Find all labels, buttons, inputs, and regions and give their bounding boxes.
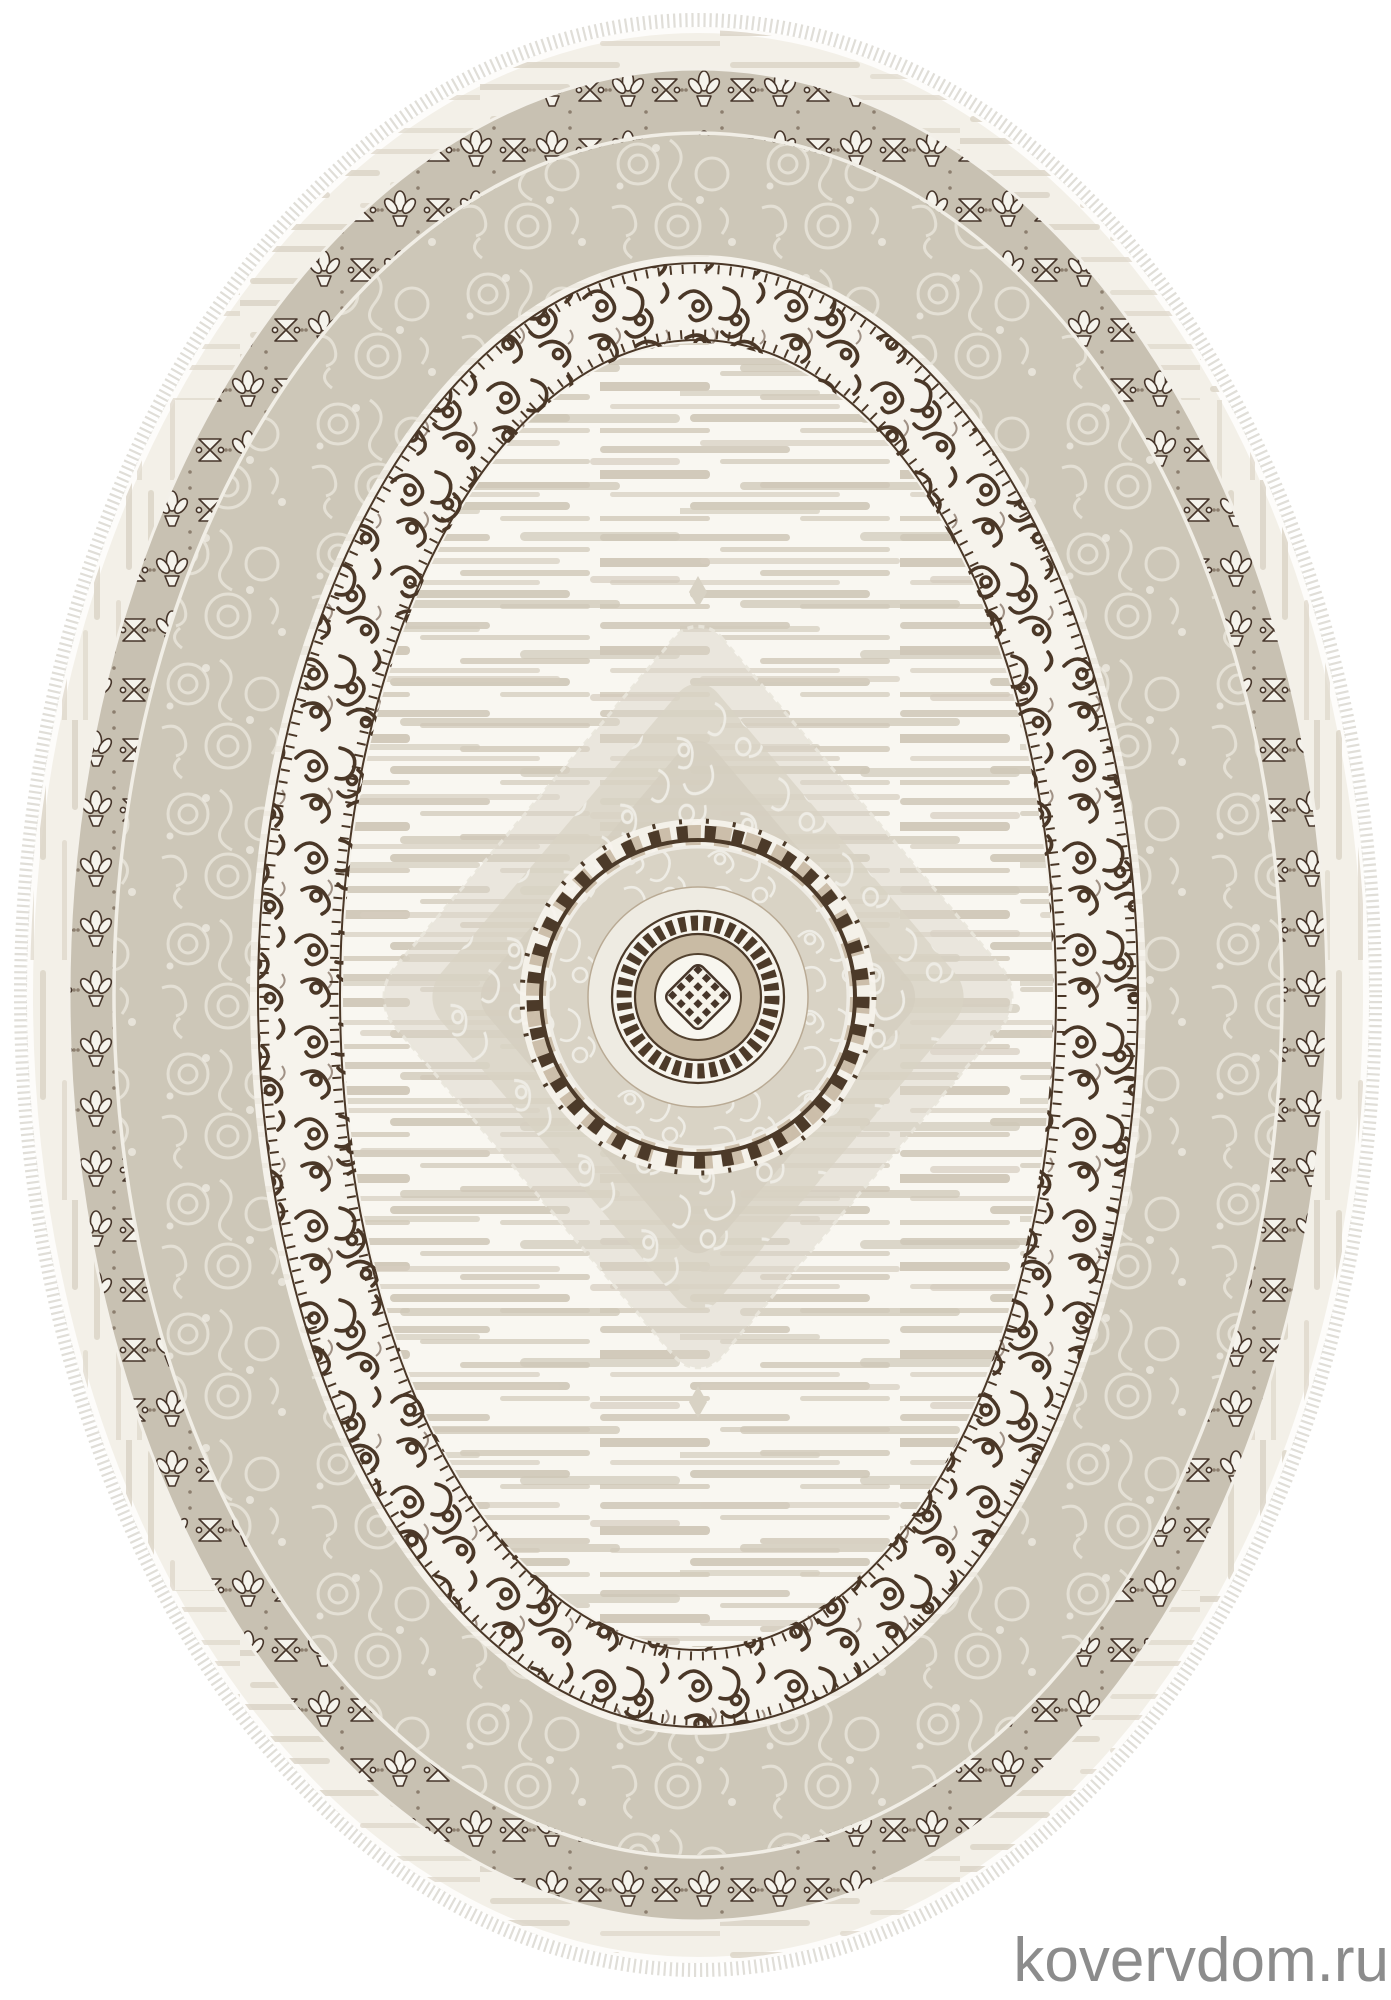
product-photo: kovervdom.ru [0, 0, 1391, 2000]
rug-image [0, 0, 1391, 2000]
watermark: kovervdom.ru [1013, 1930, 1389, 1992]
center-medallion [520, 819, 876, 1175]
